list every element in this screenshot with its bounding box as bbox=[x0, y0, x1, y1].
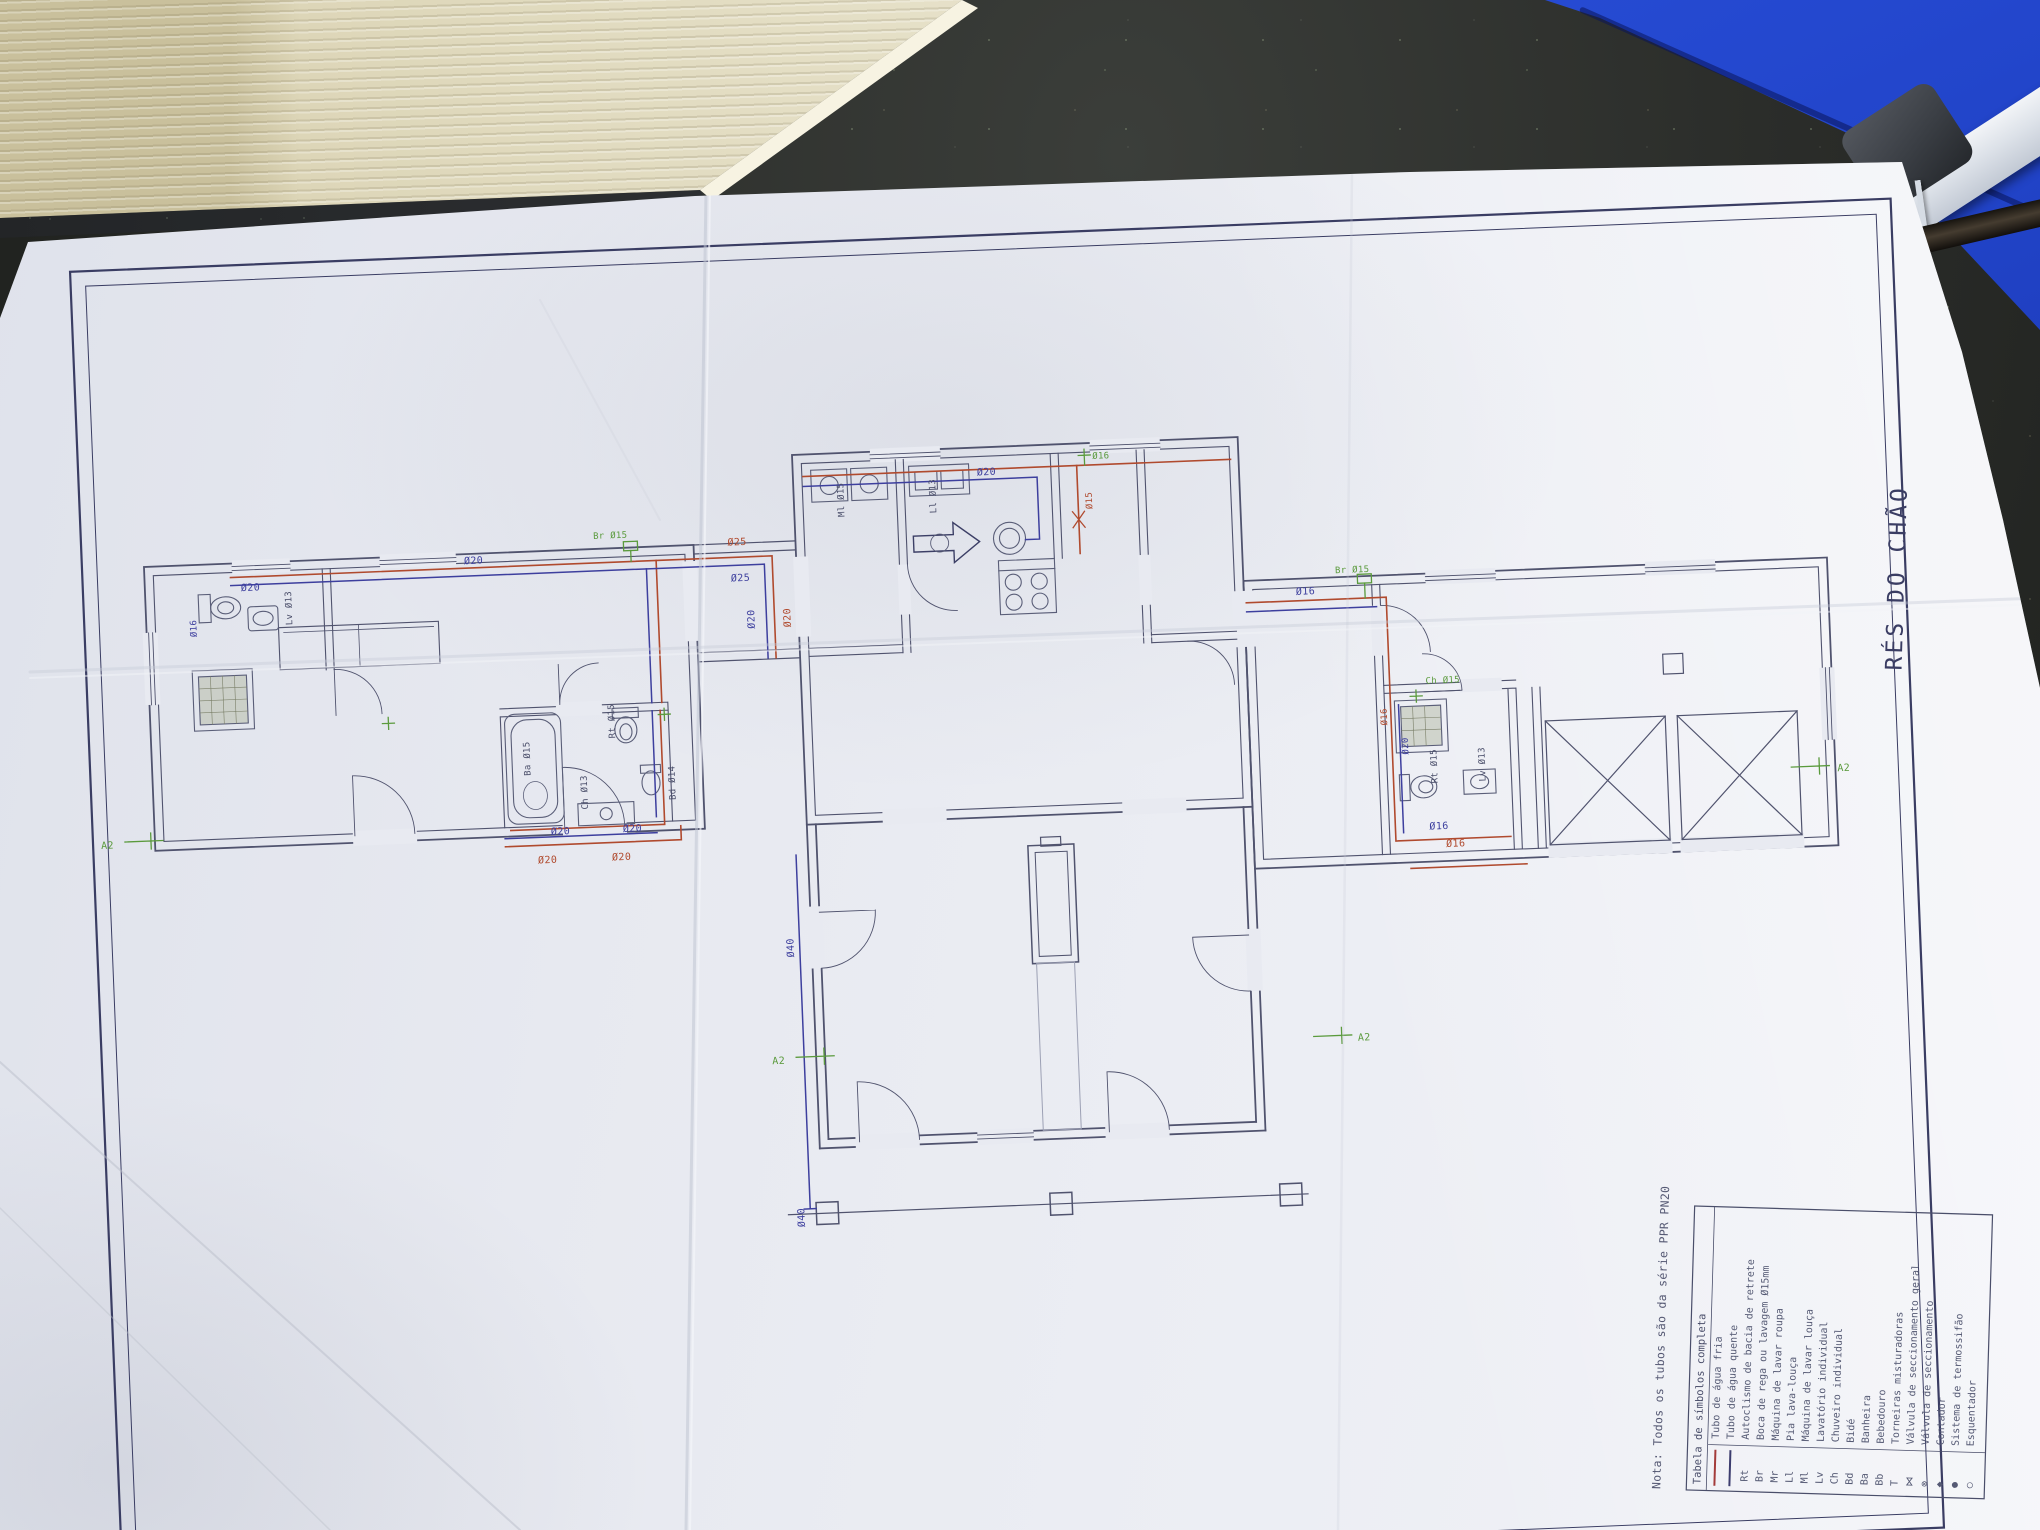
legend-symbol: Lv bbox=[1814, 1472, 1825, 1484]
legend-label: Bebedouro bbox=[1876, 1389, 1889, 1443]
legend-label: Pia lava-louça bbox=[1786, 1357, 1799, 1442]
window-marker bbox=[1663, 653, 1684, 674]
pipe-label: Ø40 bbox=[784, 938, 797, 958]
legend-label: Chuveiro individual bbox=[1831, 1328, 1845, 1443]
section-marker-label: A2 bbox=[772, 1056, 785, 1068]
legend-symbol: ◆ bbox=[1934, 1481, 1945, 1487]
pipe-label: Ø20 bbox=[781, 608, 794, 628]
hot-water-pipes bbox=[227, 448, 1527, 915]
fixture-label: Ml Ø15 bbox=[835, 482, 847, 517]
pipe-label: Ø15 bbox=[1084, 492, 1096, 510]
legend-symbol: Br bbox=[1755, 1470, 1766, 1482]
pipe-label: Ø20 bbox=[612, 851, 632, 864]
legend-label: Máquina de lavar louça bbox=[1800, 1309, 1816, 1442]
blueprint-paper-sheet: Ø20 Ø25 Ø25 Br Ø15 Ø20 Ø20 Ø20 Ø16 Ø15 Ø… bbox=[0, 0, 2040, 1530]
floor-plan-drawing: Ø20 Ø25 Ø25 Br Ø15 Ø20 Ø20 Ø20 Ø16 Ø15 Ø… bbox=[0, 0, 2040, 1530]
tap-label: Br Ø15 bbox=[593, 530, 628, 542]
legend-label: Boca de rega ou lavagem Ø15mm bbox=[1755, 1265, 1772, 1440]
legend-label: Bidé bbox=[1845, 1418, 1858, 1442]
left-bathroom-fixtures bbox=[189, 592, 282, 731]
flow-arrow bbox=[913, 522, 981, 565]
legend-label: Autoclismo de bacia de retrete bbox=[1741, 1259, 1757, 1440]
legend-symbol: ⋈ bbox=[1904, 1476, 1915, 1486]
legend-label: Banheira bbox=[1861, 1395, 1873, 1443]
legend-symbol: Rt bbox=[1740, 1469, 1751, 1481]
legend-label: Esquentador bbox=[1966, 1380, 1979, 1447]
section-marker-label: A2 bbox=[101, 840, 114, 852]
fixture-label: Ba Ø15 bbox=[521, 741, 533, 776]
legend-symbol: Ch bbox=[1829, 1472, 1840, 1484]
fixture-label: Lv Ø13 bbox=[283, 591, 295, 626]
floor-title: RÉS DO CHÃO bbox=[1880, 485, 1913, 671]
pipe-label: Ø16 bbox=[1296, 585, 1316, 598]
legend-label: Válvula de seccionamento geral bbox=[1905, 1264, 1922, 1445]
pipe-label: Ø25 bbox=[731, 572, 751, 585]
legend-note: Nota: Todos os tubos são da série PPR PN… bbox=[1649, 1186, 1672, 1490]
legend-label: Máquina de lavar roupa bbox=[1770, 1308, 1786, 1441]
fixture-label: Rt Ø15 bbox=[1428, 749, 1440, 784]
fixture-label: Bd Ø14 bbox=[666, 765, 678, 800]
pipe-label: Ø20 bbox=[745, 609, 758, 629]
legend-symbol: Ll bbox=[1784, 1471, 1795, 1483]
chimney bbox=[1028, 836, 1086, 1131]
legend-label: Contador bbox=[1936, 1397, 1948, 1445]
pipe-label: Ø20 bbox=[241, 581, 261, 594]
legend-symbol: T bbox=[1889, 1480, 1900, 1486]
fixture-label: Lv Ø13 bbox=[1476, 747, 1488, 782]
section-marker-label: A2 bbox=[1837, 763, 1850, 775]
pipe-label: Ø25 bbox=[727, 536, 747, 549]
pipe-label: Ø16 bbox=[1379, 708, 1391, 726]
pipe-label: Ø20 bbox=[1400, 737, 1412, 755]
garage-doors bbox=[1545, 711, 1802, 845]
legend-label: Sistema de termossifão bbox=[1951, 1313, 1966, 1446]
legend-label: Lavatório individual bbox=[1815, 1321, 1831, 1442]
pipe-label: Ø40 bbox=[795, 1208, 808, 1228]
legend-symbol: Ba bbox=[1859, 1473, 1870, 1485]
terrace bbox=[788, 1183, 1308, 1226]
legend-label: Tubo de água quente bbox=[1725, 1325, 1740, 1440]
legend-header: Tabela de símbolos completa bbox=[1691, 1313, 1708, 1484]
fixture-label: Ch Ø13 bbox=[579, 775, 591, 810]
green-symbols bbox=[111, 420, 1840, 1092]
fixture-label: Ch Ø15 bbox=[1425, 674, 1460, 686]
cold-water-pipes bbox=[228, 463, 1418, 1231]
pipe-label: Ø16 bbox=[188, 620, 200, 638]
section-marker-label: A2 bbox=[1358, 1032, 1371, 1044]
pipe-label: Ø16 bbox=[1446, 837, 1466, 850]
living-room-walls bbox=[804, 807, 1269, 1152]
legend-label: Válvula de seccionamento bbox=[1920, 1300, 1936, 1445]
legend-symbol: Bd bbox=[1844, 1473, 1855, 1485]
legend-symbol: ○ bbox=[1964, 1482, 1975, 1488]
pipe-label: Ø16 bbox=[1429, 820, 1449, 833]
fixture-label: Rt Ø15 bbox=[606, 704, 618, 739]
tap-label: Br Ø15 bbox=[1335, 564, 1370, 576]
legend-symbol: ⊗ bbox=[1919, 1481, 1930, 1487]
legend-symbol: Mr bbox=[1769, 1470, 1780, 1482]
legend-symbol: Ml bbox=[1799, 1471, 1810, 1483]
legend-label: Torneiras misturadoras bbox=[1891, 1312, 1906, 1445]
legend-symbol: Bb bbox=[1874, 1473, 1885, 1485]
legend-label: Tubo de água fria bbox=[1710, 1336, 1725, 1439]
pipe-label: Ø20 bbox=[464, 554, 484, 567]
water-heater bbox=[993, 522, 1026, 555]
photo-of-floor-plan: Ø20 Ø25 Ø25 Br Ø15 Ø20 Ø20 Ø20 Ø16 Ø15 Ø… bbox=[0, 0, 2040, 1530]
legend-swatch bbox=[1729, 1451, 1730, 1485]
pipe-label: Ø20 bbox=[623, 822, 643, 835]
pipe-label: Ø16 bbox=[1092, 450, 1110, 462]
legend-swatch bbox=[1714, 1451, 1715, 1485]
pipe-label: Ø20 bbox=[538, 854, 558, 867]
pipe-label: Ø20 bbox=[551, 825, 571, 838]
fixture-label: Ll Ø13 bbox=[927, 479, 939, 514]
pipe-label: Ø20 bbox=[977, 466, 997, 479]
legend: Nota: Todos os tubos são da série PPR PN… bbox=[1649, 1186, 1993, 1499]
legend-symbol: ● bbox=[1949, 1482, 1960, 1488]
